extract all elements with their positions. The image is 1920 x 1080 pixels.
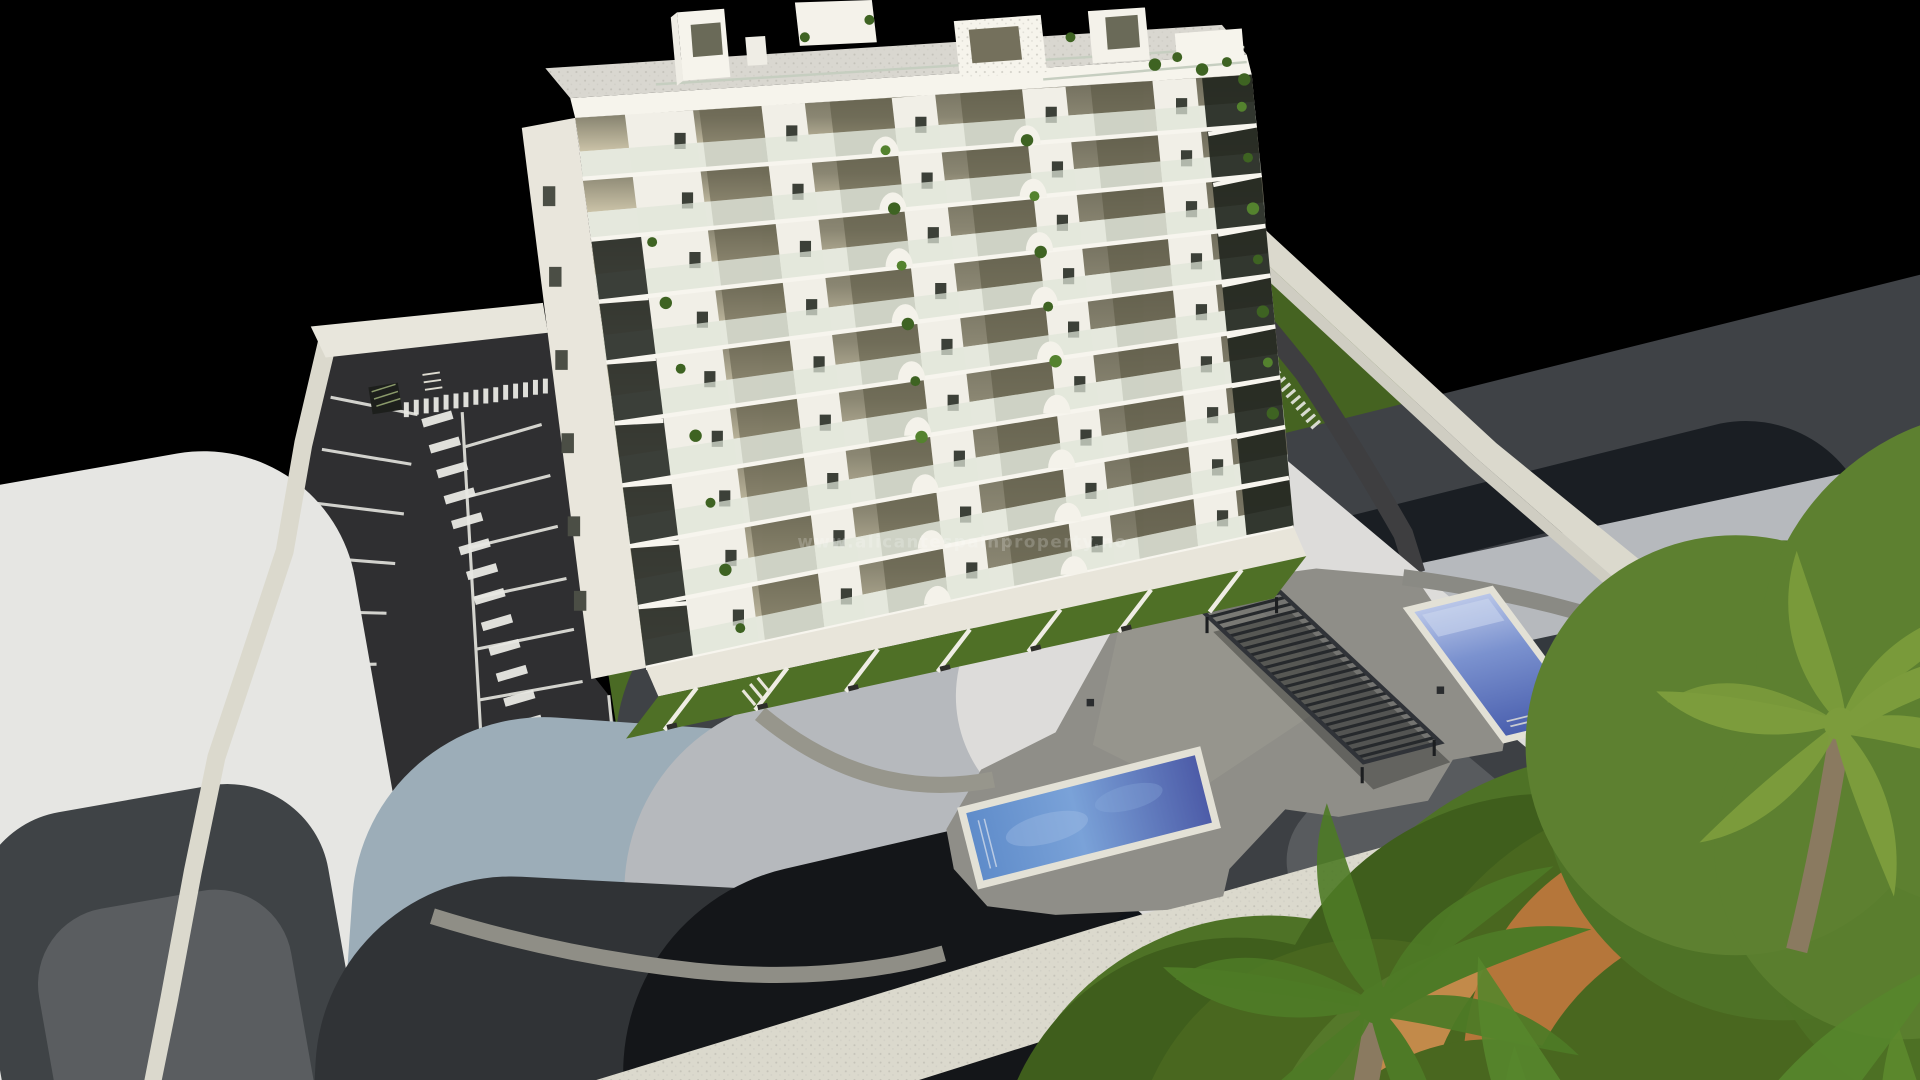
side-table (1437, 686, 1444, 693)
side-table (1087, 699, 1094, 706)
watermark-text: www.alicantespainproperty.no (797, 531, 1127, 551)
architectural-render: www.alicantespainproperty.no (0, 0, 1920, 1080)
render-canvas: www.alicantespainproperty.no (0, 0, 1920, 1080)
